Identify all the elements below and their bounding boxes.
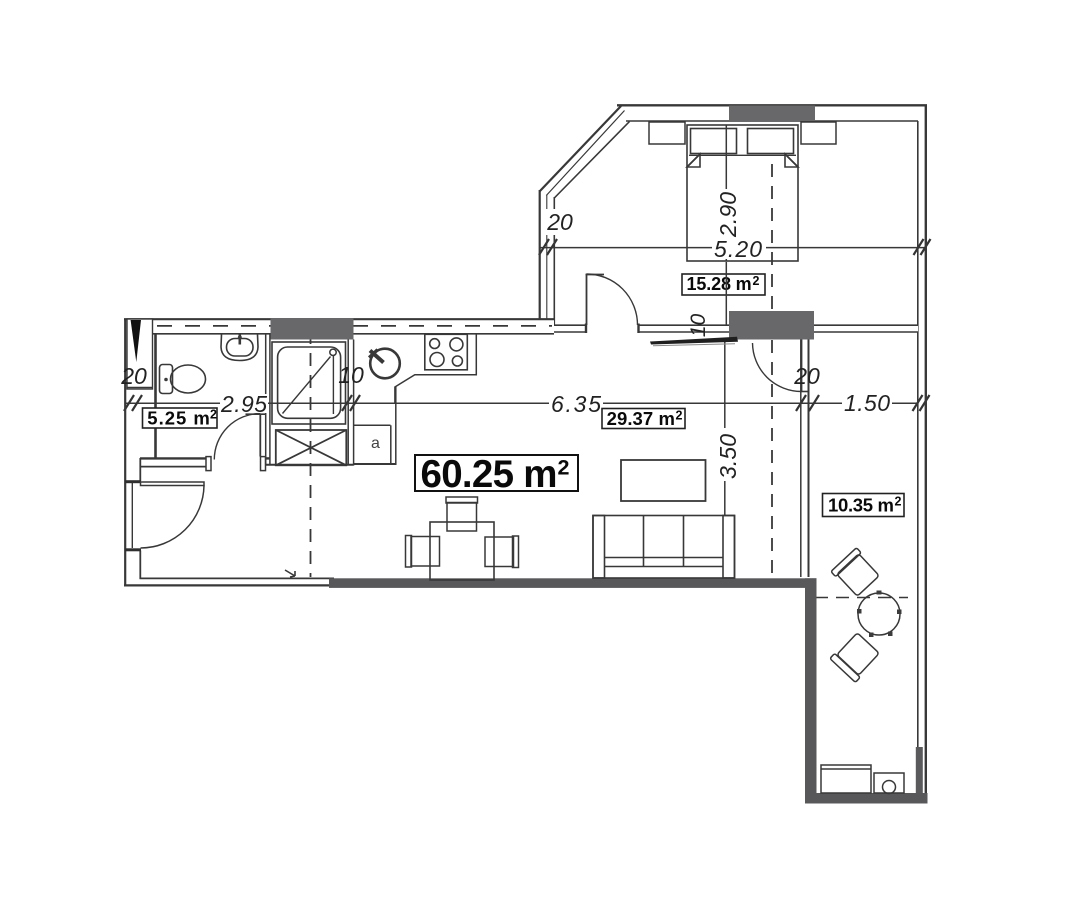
svg-text:6.35: 6.35: [551, 391, 601, 417]
svg-text:29.37 m: 29.37 m: [607, 408, 675, 429]
svg-text:20: 20: [546, 209, 573, 235]
svg-text:a: a: [371, 435, 380, 452]
svg-text:60.25 m: 60.25 m: [421, 453, 558, 496]
svg-text:3.50: 3.50: [715, 434, 741, 479]
svg-text:2: 2: [210, 408, 217, 422]
svg-text:5.20: 5.20: [714, 236, 762, 262]
svg-text:1.50: 1.50: [844, 390, 890, 416]
svg-text:10.35 m: 10.35 m: [828, 495, 894, 516]
svg-text:2: 2: [895, 495, 902, 509]
svg-text:20: 20: [793, 363, 820, 389]
svg-text:2: 2: [676, 409, 683, 423]
svg-text:15.28 m: 15.28 m: [687, 274, 752, 294]
svg-text:2: 2: [558, 456, 570, 480]
svg-text:2.90: 2.90: [715, 192, 741, 238]
svg-text:20: 20: [120, 363, 147, 389]
svg-text:10: 10: [338, 362, 364, 388]
svg-text:2.95: 2.95: [220, 391, 267, 417]
svg-text:5.25 m: 5.25 m: [147, 408, 210, 429]
svg-text:2: 2: [753, 274, 760, 288]
svg-text:10: 10: [687, 314, 710, 338]
